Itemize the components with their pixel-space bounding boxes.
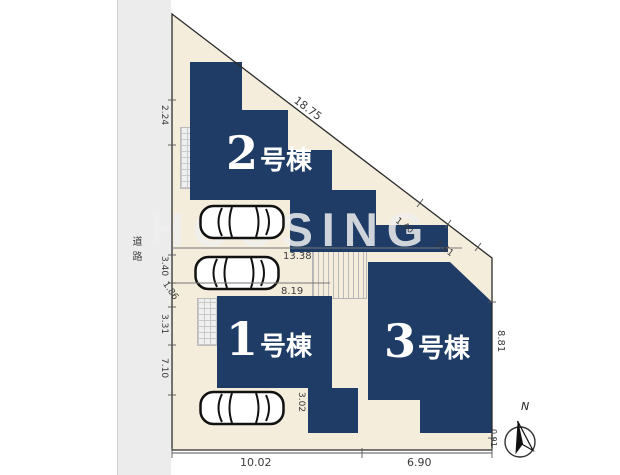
car-icon: [193, 254, 281, 292]
dim-width-upper: 13.38: [283, 251, 312, 262]
building-1-label: 1 号棟: [226, 316, 312, 362]
building-2-label: 2 号棟: [226, 130, 312, 176]
dim-width-lower: 8.19: [281, 286, 303, 297]
road-strip: [117, 0, 171, 475]
dim-right-height: 8.81: [495, 330, 506, 352]
car-icon: [198, 389, 286, 427]
compass-north-label: N: [521, 400, 529, 413]
building-3-number: 3: [384, 318, 416, 364]
dim-corner-right: 0.91: [489, 429, 498, 447]
dim-left-a: 3.40: [159, 256, 169, 276]
dim-left-c: 3.31: [159, 314, 169, 334]
building-3-suffix: 号棟: [418, 336, 470, 362]
dim-bottom-left: 10.02: [240, 456, 272, 469]
dim-left-d: 7.10: [159, 358, 169, 378]
building-1-annex: [308, 388, 358, 433]
site-plan: 道路 HOUSING 2 号棟 1 号棟 3 号棟: [0, 0, 620, 475]
dim-inner-vertical: 3.02: [296, 392, 306, 412]
building-2-number: 2: [226, 130, 258, 176]
building-1-suffix: 号棟: [260, 334, 312, 360]
dim-left-top: 2.24: [159, 105, 169, 125]
building-1-number: 1: [226, 316, 258, 362]
striped-approach-area: [312, 250, 367, 299]
dim-bottom-right: 6.90: [407, 456, 432, 469]
building-3-label: 3 号棟: [384, 318, 470, 364]
hatched-area-lower: [197, 298, 219, 346]
car-icon: [198, 203, 286, 241]
road-label: 道路: [128, 236, 143, 266]
building-2-suffix: 号棟: [260, 148, 312, 174]
compass-icon: [498, 408, 542, 464]
